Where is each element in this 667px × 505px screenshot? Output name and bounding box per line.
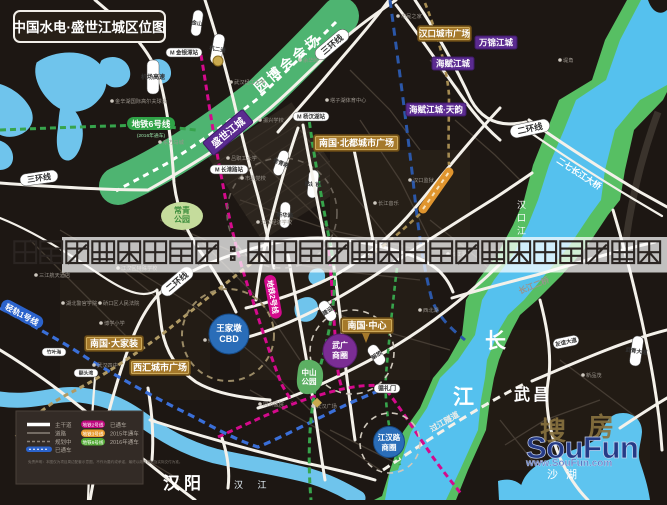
svg-text:额头湾: 额头湾 (79, 370, 94, 377)
svg-text:已通车: 已通车 (55, 446, 72, 454)
svg-text:www.SouFun.com: www.SouFun.com (525, 458, 612, 469)
svg-text:武汉四中: 武汉四中 (97, 361, 118, 369)
svg-text:堤角: 堤角 (563, 56, 573, 64)
svg-text:公园: 公园 (174, 215, 190, 224)
svg-text:湖北警官学院: 湖北警官学院 (66, 299, 98, 307)
svg-text:王家墩: 王家墩 (216, 323, 242, 333)
svg-text:机场高速: 机场高速 (141, 73, 165, 81)
svg-text:中山: 中山 (302, 367, 317, 377)
svg-text:公园: 公园 (302, 377, 317, 386)
svg-text:西北湖: 西北湖 (423, 306, 439, 314)
svg-text:博学小学: 博学小学 (104, 319, 125, 327)
svg-text:M 长港路站: M 长港路站 (215, 165, 244, 173)
svg-text:2016年通车: 2016年通车 (110, 438, 139, 446)
svg-text:同济医院: 同济医院 (263, 400, 285, 408)
svg-text:余华岭: 余华岭 (303, 56, 319, 64)
svg-text:新品茂: 新品茂 (586, 371, 602, 379)
svg-text:汉 江: 汉 江 (234, 480, 273, 490)
svg-text:江汉经济学校: 江汉经济学校 (261, 218, 292, 226)
svg-text:南国·中心: 南国·中心 (348, 320, 387, 331)
svg-text:武昌: 武昌 (514, 385, 552, 404)
svg-text:吕职工大学: 吕职工大学 (231, 154, 257, 162)
svg-text:市委党校: 市委党校 (245, 174, 266, 182)
svg-text:(2016年通车): (2016年通车) (137, 132, 166, 139)
svg-text:中国水电·盛世江城区位图: 中国水电·盛世江城区位图 (13, 19, 166, 35)
svg-text:海赋江城: 海赋江城 (436, 59, 471, 69)
svg-text:主干道: 主干道 (55, 421, 72, 429)
svg-text:竹叶海: 竹叶海 (46, 349, 62, 356)
svg-text:武汉轻工大学: 武汉轻工大学 (234, 78, 265, 86)
svg-text:万锦江城: 万锦江城 (478, 38, 514, 48)
svg-text:M 金银潭站: M 金银潭站 (170, 48, 199, 56)
svg-text:CBD: CBD (219, 334, 239, 344)
svg-text:商圈: 商圈 (382, 442, 397, 452)
svg-text:汉口城市广场: 汉口城市广场 (419, 29, 471, 39)
svg-text:2015年通车: 2015年通车 (110, 430, 139, 438)
svg-text:振兴学校: 振兴学校 (263, 116, 284, 124)
svg-text:商圈: 商圈 (332, 350, 348, 360)
svg-text:海赋江城·天韵: 海赋江城·天韵 (409, 105, 463, 115)
svg-text:东方马城: 东方马城 (163, 138, 185, 146)
svg-text:武广: 武广 (332, 340, 348, 350)
svg-text:沙湖: 沙湖 (547, 468, 585, 481)
svg-text:塔子湖体育中心: 塔子湖体育中心 (330, 96, 366, 104)
svg-text:硚口区人民法院: 硚口区人民法院 (103, 299, 140, 307)
svg-text:已通车: 已通车 (110, 421, 127, 429)
svg-text:地铁6号线: 地铁6号线 (132, 119, 171, 129)
svg-text:道路: 道路 (55, 430, 67, 438)
svg-text:规划中: 规划中 (55, 438, 72, 446)
svg-text:免责声明：本图仅为项目周边配套示意图，不作为要约或承诺，最终: 免责声明：本图仅为项目周边配套示意图，不作为要约或承诺，最终以政府规划及实际交付… (28, 459, 183, 464)
svg-text:长: 长 (485, 330, 507, 353)
svg-text:南国·北都城市广场: 南国·北都城市广场 (319, 137, 394, 148)
svg-text:循礼门: 循礼门 (378, 385, 396, 393)
svg-text:地铁2号线: 地铁2号线 (83, 421, 104, 428)
svg-text:地铁3号线: 地铁3号线 (83, 430, 104, 437)
svg-text:M 杨汊湖站: M 杨汊湖站 (297, 112, 326, 120)
svg-text:常青: 常青 (174, 205, 190, 215)
svg-text:汉口监狱: 汉口监狱 (413, 176, 435, 184)
svg-text:西汇城市广场: 西汇城市广场 (133, 362, 187, 373)
svg-text:金辛湖国际高尔夫球会: 金辛湖国际高尔夫球会 (115, 97, 167, 105)
svg-text:江汉路: 江汉路 (378, 432, 401, 442)
svg-text:江: 江 (453, 386, 474, 409)
svg-text:南国·大家装: 南国·大家装 (90, 338, 139, 349)
svg-text:汉口江: 汉口江 (516, 200, 526, 239)
svg-text:长江音乐: 长江音乐 (378, 199, 399, 207)
svg-text:地铁6号线: 地铁6号线 (83, 439, 104, 446)
svg-text:汉阳: 汉阳 (163, 474, 205, 493)
svg-text:市民之家: 市民之家 (401, 12, 422, 20)
